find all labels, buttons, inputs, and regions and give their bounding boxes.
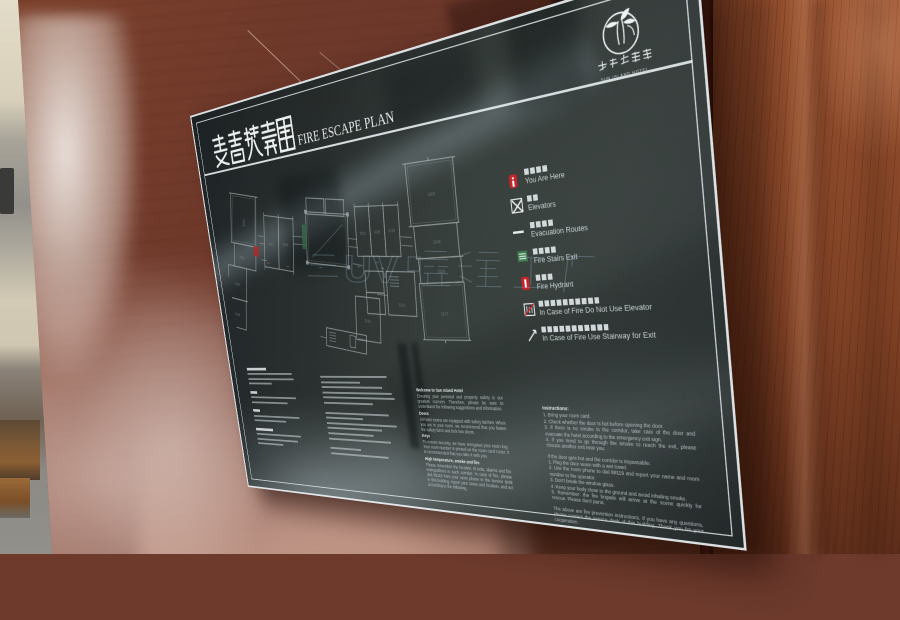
svg-text:3222: 3222 xyxy=(399,302,406,308)
svg-text:3229: 3229 xyxy=(235,281,240,287)
svg-text:3221: 3221 xyxy=(359,230,366,236)
svg-text:UV: UV xyxy=(344,249,400,292)
svg-text:3231: 3231 xyxy=(242,218,245,227)
svg-text:3220: 3220 xyxy=(374,229,381,235)
svg-text:3218: 3218 xyxy=(433,239,441,246)
svg-text:3224: 3224 xyxy=(365,318,372,324)
svg-text:3227: 3227 xyxy=(269,241,275,247)
svg-text:3219: 3219 xyxy=(388,228,395,234)
svg-text:3226: 3226 xyxy=(283,242,289,248)
svg-text:3230: 3230 xyxy=(239,255,244,261)
svg-text:3228: 3228 xyxy=(235,311,240,317)
svg-text:3217: 3217 xyxy=(441,311,449,317)
svg-text:3203: 3203 xyxy=(427,190,436,197)
